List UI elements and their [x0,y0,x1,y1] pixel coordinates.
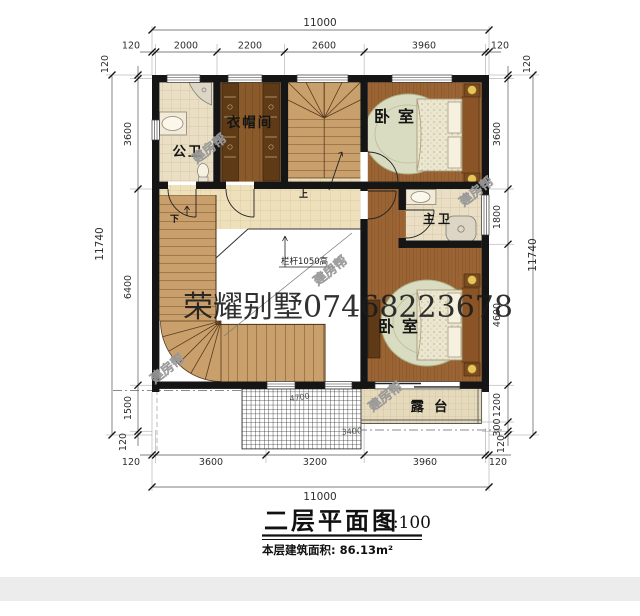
railing-height-label: 栏杆1050高 [281,256,328,267]
dim-left-4: 120 [118,433,129,451]
bottom-strip [0,577,640,601]
dim-top-1: 2000 [174,41,198,52]
stair-up-label: 上 [299,188,308,200]
dim-right-4: 1200 [492,393,503,417]
dim-top-4: 3960 [412,41,436,52]
dim-bottom-4: 120 [489,457,507,468]
drawing-title: 二层平面图 [264,507,399,535]
window-top-3 [297,75,348,82]
stair-down-label: 下 [170,214,179,225]
dim-top-5: 120 [491,41,509,52]
dim-right-total: 11740 [527,238,539,271]
dim-top-0: 120 [122,41,140,52]
window-top-2 [228,75,262,82]
window-top-1 [167,75,200,82]
label-terrace: 露台 [411,398,458,415]
floor-plan-page: 11000 120 2000 2200 2600 3960 120 11000 … [0,0,640,616]
drawing-scale: 1:100 [382,513,431,533]
title-block: 二层平面图 1:100 本层建筑面积: 86.13m² [262,507,431,557]
floor-area-note: 本层建筑面积: 86.13m² [262,543,393,557]
dim-top-2: 2200 [238,41,262,52]
dim-top-3: 2600 [312,41,336,52]
dim-left-0: 120 [100,55,111,73]
floor-plan-drawing: 11000 120 2000 2200 2600 3960 120 11000 … [0,0,640,616]
dim-bottom-1: 3600 [199,457,223,468]
label-bedroom-top: 卧室 [374,107,422,126]
window-right-master-bath [482,195,489,235]
dim-top-total: 11000 [303,17,336,29]
dim-bottom-2: 3200 [303,457,327,468]
dim-bottom-3: 3960 [413,457,437,468]
dim-right-2: 1800 [492,205,503,229]
dim-right-0: 120 [522,55,533,73]
lattice-dim-b: 3400 [341,426,362,436]
dim-left-1: 3600 [123,122,134,146]
dim-right-5: 300 [492,418,503,436]
window-bottom-2 [325,382,352,389]
dim-left-3: 1500 [123,396,134,420]
dim-left-2: 6400 [123,275,134,299]
label-cloakroom: 衣帽间 [227,114,274,131]
dim-bottom-0: 120 [122,457,140,468]
window-left [152,120,159,140]
window-top-4 [392,75,452,82]
dim-right-6: 120 [496,435,507,453]
window-bottom-1 [267,382,295,389]
dim-right-1: 3600 [492,122,503,146]
brand-watermark: 荣耀别墅07468223678 [183,290,513,325]
dim-left-total: 11740 [94,227,106,260]
label-master-bath: 主卫 [423,211,453,226]
dim-bottom-total: 11000 [303,491,336,503]
